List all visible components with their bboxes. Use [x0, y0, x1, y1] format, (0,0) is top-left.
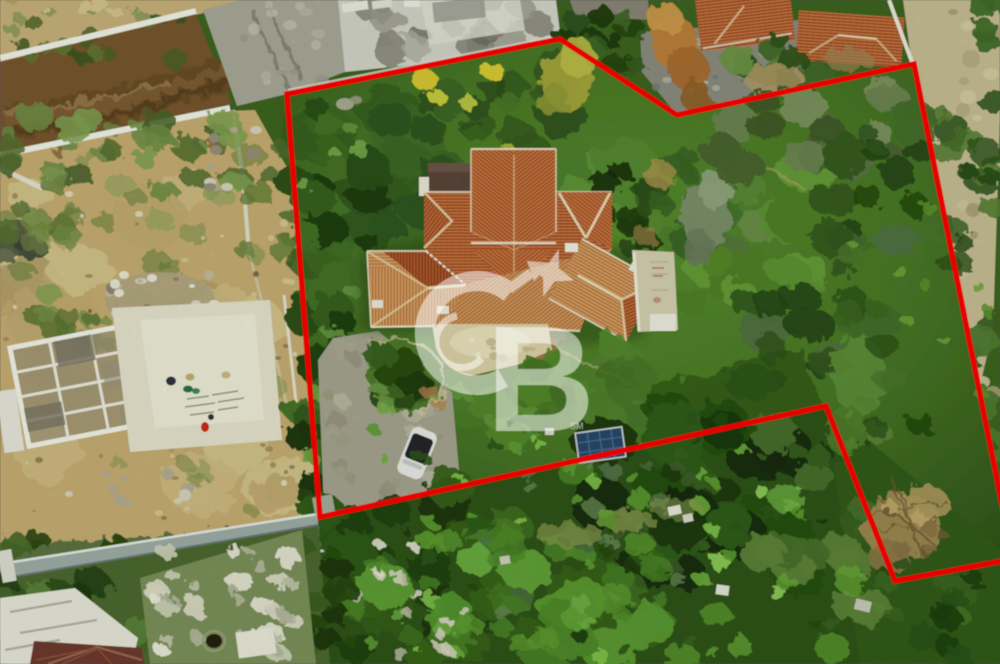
svg-text:B: B [486, 294, 595, 463]
svg-text:SM: SM [570, 421, 584, 431]
